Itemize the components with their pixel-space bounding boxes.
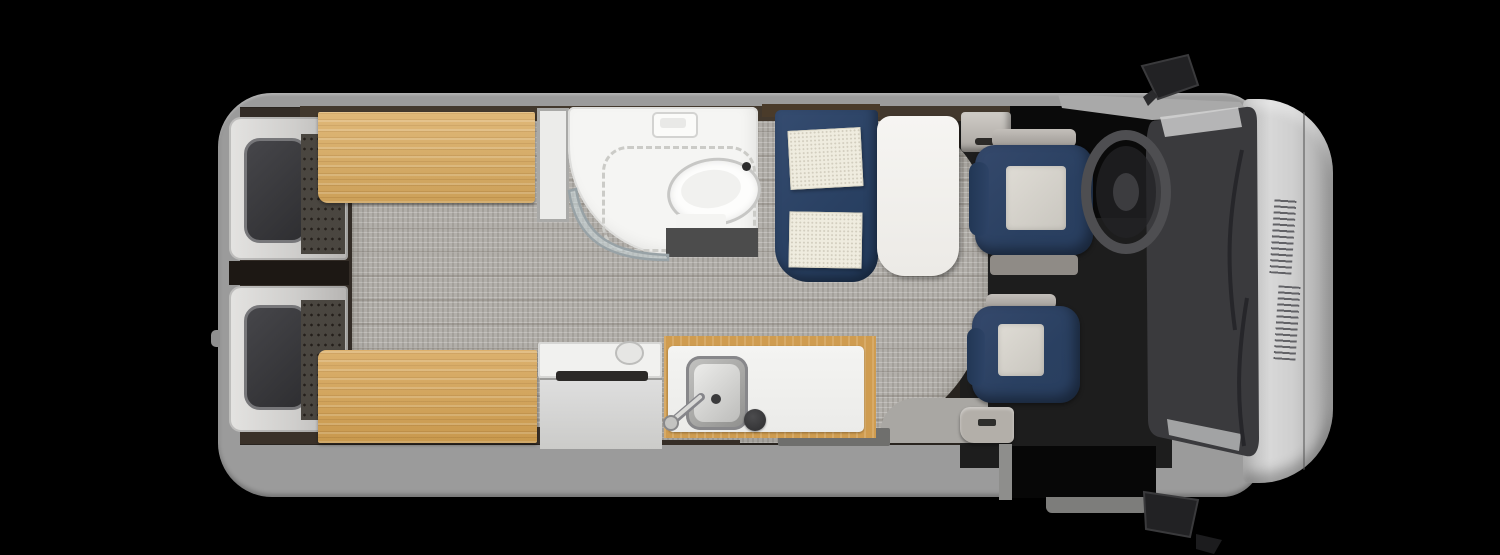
counter-lid <box>615 341 644 365</box>
driver-seat-insert <box>1006 166 1066 230</box>
front-bumper-seam <box>1303 112 1305 470</box>
passenger-seat-armrest <box>967 328 985 386</box>
rear-door-handle <box>211 330 220 347</box>
bench-bed-bottom <box>318 350 537 443</box>
sink-drain <box>711 394 721 404</box>
bath-drain <box>742 162 751 171</box>
dinette-cushion <box>788 127 864 190</box>
floorplan-canvas <box>0 0 1500 555</box>
rear-door-seam <box>229 261 349 285</box>
refrigerator-front <box>540 378 662 449</box>
sliding-door-lower-opening <box>1004 446 1156 498</box>
burner-cover <box>744 409 766 431</box>
rear-door-window <box>244 305 308 410</box>
wall-ledge-bottom <box>660 440 740 445</box>
dinette-cushion <box>789 211 863 268</box>
passenger-seat-insert <box>998 324 1044 376</box>
tall-cabinet <box>537 108 569 222</box>
sink-basin <box>694 364 740 422</box>
door-rocker-trim <box>1046 497 1152 513</box>
roof-vent-fan-inner <box>660 118 686 128</box>
refrigerator-handle <box>556 371 648 381</box>
dinette-table <box>877 116 959 276</box>
b-pillar <box>999 444 1012 500</box>
seat-pedestal <box>990 255 1078 275</box>
bath-vanity <box>666 228 758 257</box>
rear-door-window <box>244 138 308 243</box>
bench-bed-top <box>318 112 535 203</box>
driver-seat-armrest <box>969 162 989 236</box>
side-mirror-bottom <box>1144 492 1198 537</box>
entry-step-slot <box>978 419 996 426</box>
side-mirror-flap <box>1196 534 1222 554</box>
